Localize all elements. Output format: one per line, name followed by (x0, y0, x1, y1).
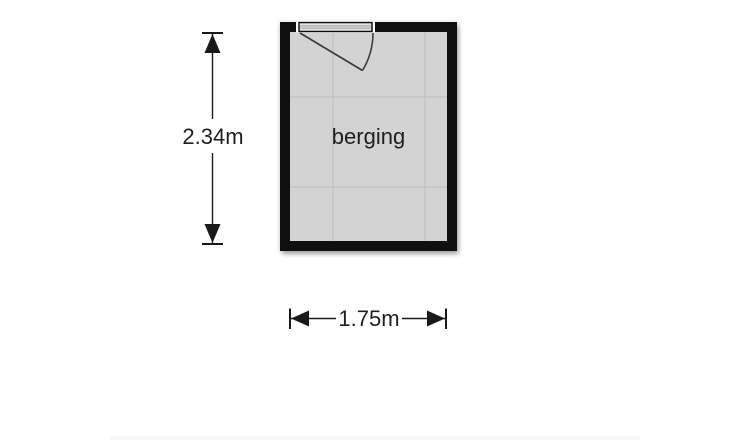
floorplan-svg: 2.34m 1.75m berging (0, 0, 750, 441)
bottom-edge-artifact (110, 436, 640, 440)
vertical-dimension-label: 2.34m (182, 124, 243, 149)
horizontal-dimension-label: 1.75m (338, 306, 399, 331)
floorplan-canvas: 2.34m 1.75m berging (0, 0, 750, 441)
room-label: berging (332, 124, 405, 149)
